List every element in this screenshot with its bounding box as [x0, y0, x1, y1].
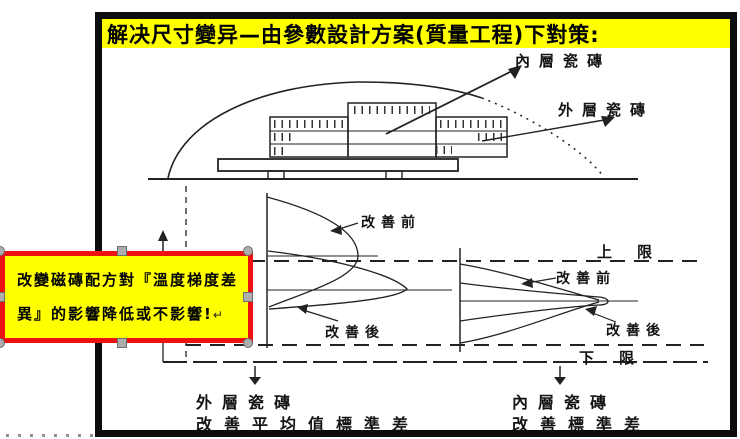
- selection-handle-bottom-right[interactable]: [243, 338, 253, 348]
- callout-line1: 改變磁磚配方對『溫度梯度差: [17, 263, 242, 297]
- conclusion-right-desc: 改善標準差: [512, 411, 652, 435]
- slide-title: 解决尺寸變异—由參數設計方案(質量工程)下對策:: [102, 19, 600, 49]
- selection-handle-top-right[interactable]: [243, 246, 253, 256]
- selection-handle-mid-left[interactable]: [0, 292, 5, 302]
- outer-tile-label: 外層瓷磚: [558, 99, 654, 120]
- callout-textbox[interactable]: 改變磁磚配方對『溫度梯度差 異』的影響降低或不影響!↵: [0, 251, 253, 343]
- selection-handle-bottom-left[interactable]: [0, 338, 5, 348]
- right-after-label: 改善後: [606, 320, 666, 340]
- callout-line2: 異』的影響降低或不影響!↵: [17, 297, 242, 332]
- lower-limit-label: 下 限: [579, 347, 639, 368]
- screenshot-canvas: 解决尺寸變异—由參數設計方案(質量工程)下對策:: [0, 0, 740, 439]
- callout-text: 改變磁磚配方對『溫度梯度差 異』的影響降低或不影響!↵: [5, 256, 248, 332]
- inner-tile-label: 內層瓷磚: [515, 50, 611, 71]
- margin-dots-artifact: [6, 434, 98, 437]
- left-before-label: 改善前: [361, 212, 421, 232]
- selection-handle-mid-right[interactable]: [243, 292, 253, 302]
- conclusion-left-title: 外層瓷磚: [196, 389, 300, 413]
- conclusion-left-desc: 改善平均值標準差: [196, 411, 420, 435]
- selection-handle-bottom-mid[interactable]: [117, 338, 127, 348]
- title-band: 解决尺寸變异—由參數設計方案(質量工程)下對策:: [102, 19, 730, 48]
- upper-limit-label: 上 限: [597, 241, 657, 262]
- left-after-label: 改善後: [325, 322, 385, 342]
- right-before-label: 改善前: [556, 268, 616, 288]
- selection-handle-top-mid[interactable]: [117, 246, 127, 256]
- paragraph-return-mark: ↵: [213, 308, 223, 322]
- conclusion-right-title: 內層瓷磚: [512, 389, 616, 413]
